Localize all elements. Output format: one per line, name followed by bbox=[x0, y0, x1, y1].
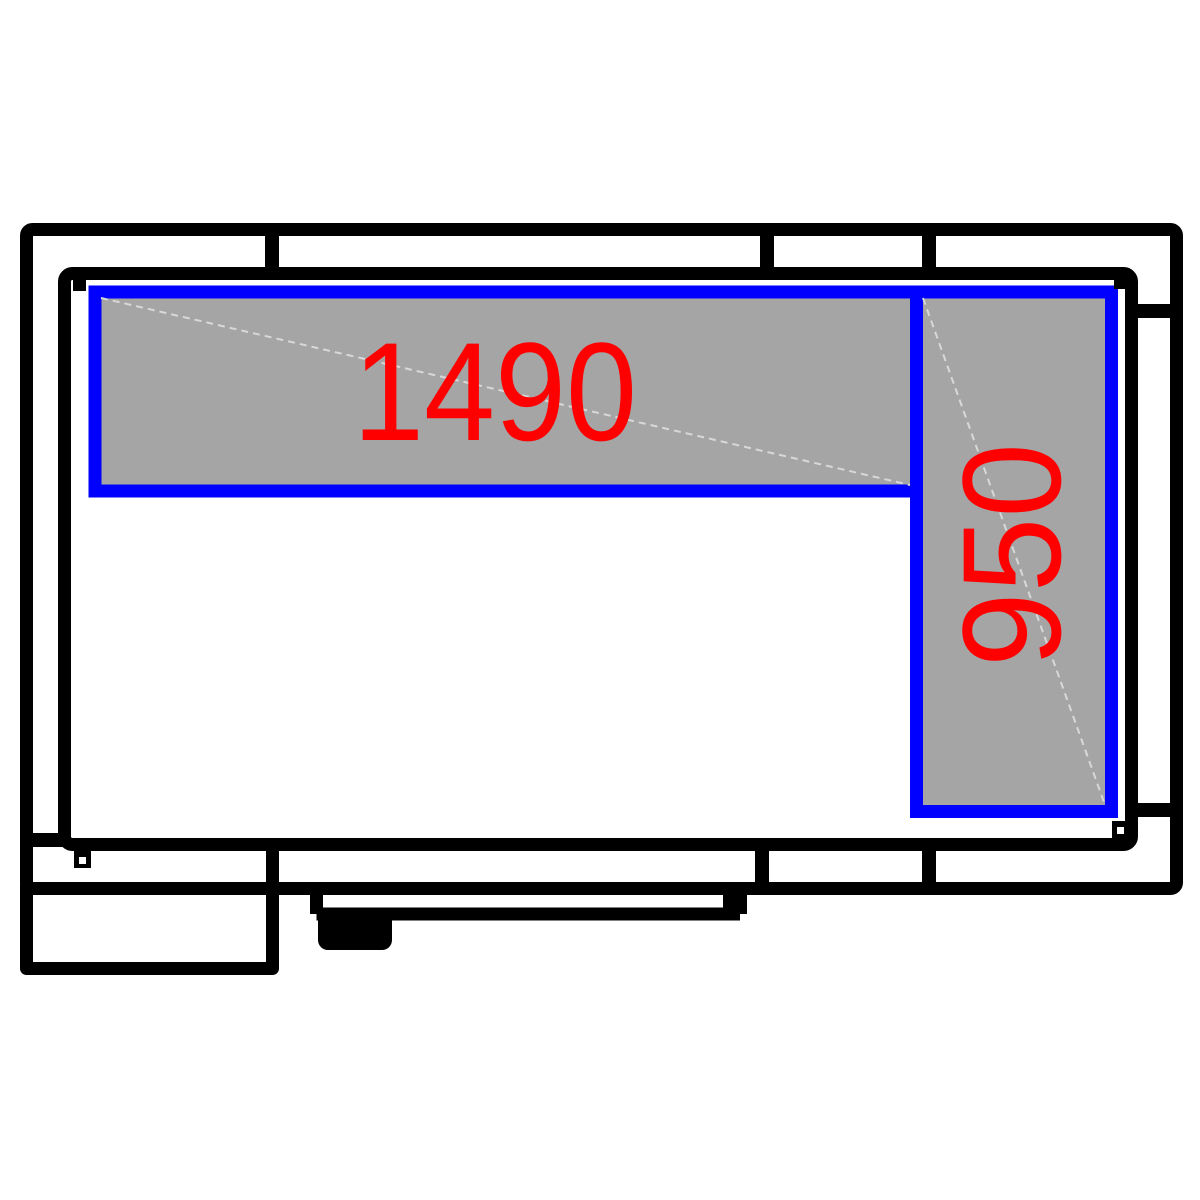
corner-marker-top-right bbox=[1114, 276, 1127, 289]
dimension-top-shelf: 1490 bbox=[353, 313, 637, 470]
door-handle-block bbox=[318, 908, 392, 950]
floor-plan-page: 1490 950 bbox=[0, 0, 1200, 1200]
corner-marker-bottom-left-hole bbox=[79, 857, 86, 864]
equipment-box bbox=[27, 845, 273, 969]
dimension-right-shelf: 950 bbox=[933, 443, 1090, 667]
corner-marker-bottom-right-hole bbox=[1117, 827, 1124, 834]
corner-marker-top-left bbox=[73, 278, 86, 291]
floor-plan-drawing: 1490 950 bbox=[0, 0, 1200, 1200]
